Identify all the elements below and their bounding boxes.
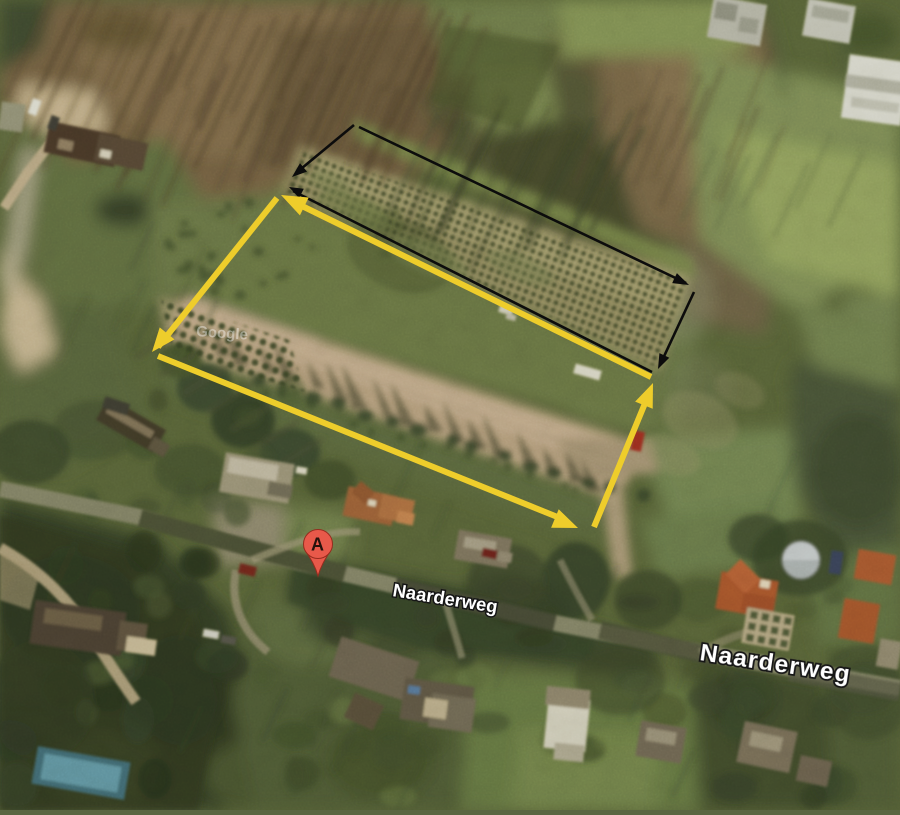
svg-text:A: A xyxy=(311,535,324,555)
svg-text:Google: Google xyxy=(196,323,249,344)
